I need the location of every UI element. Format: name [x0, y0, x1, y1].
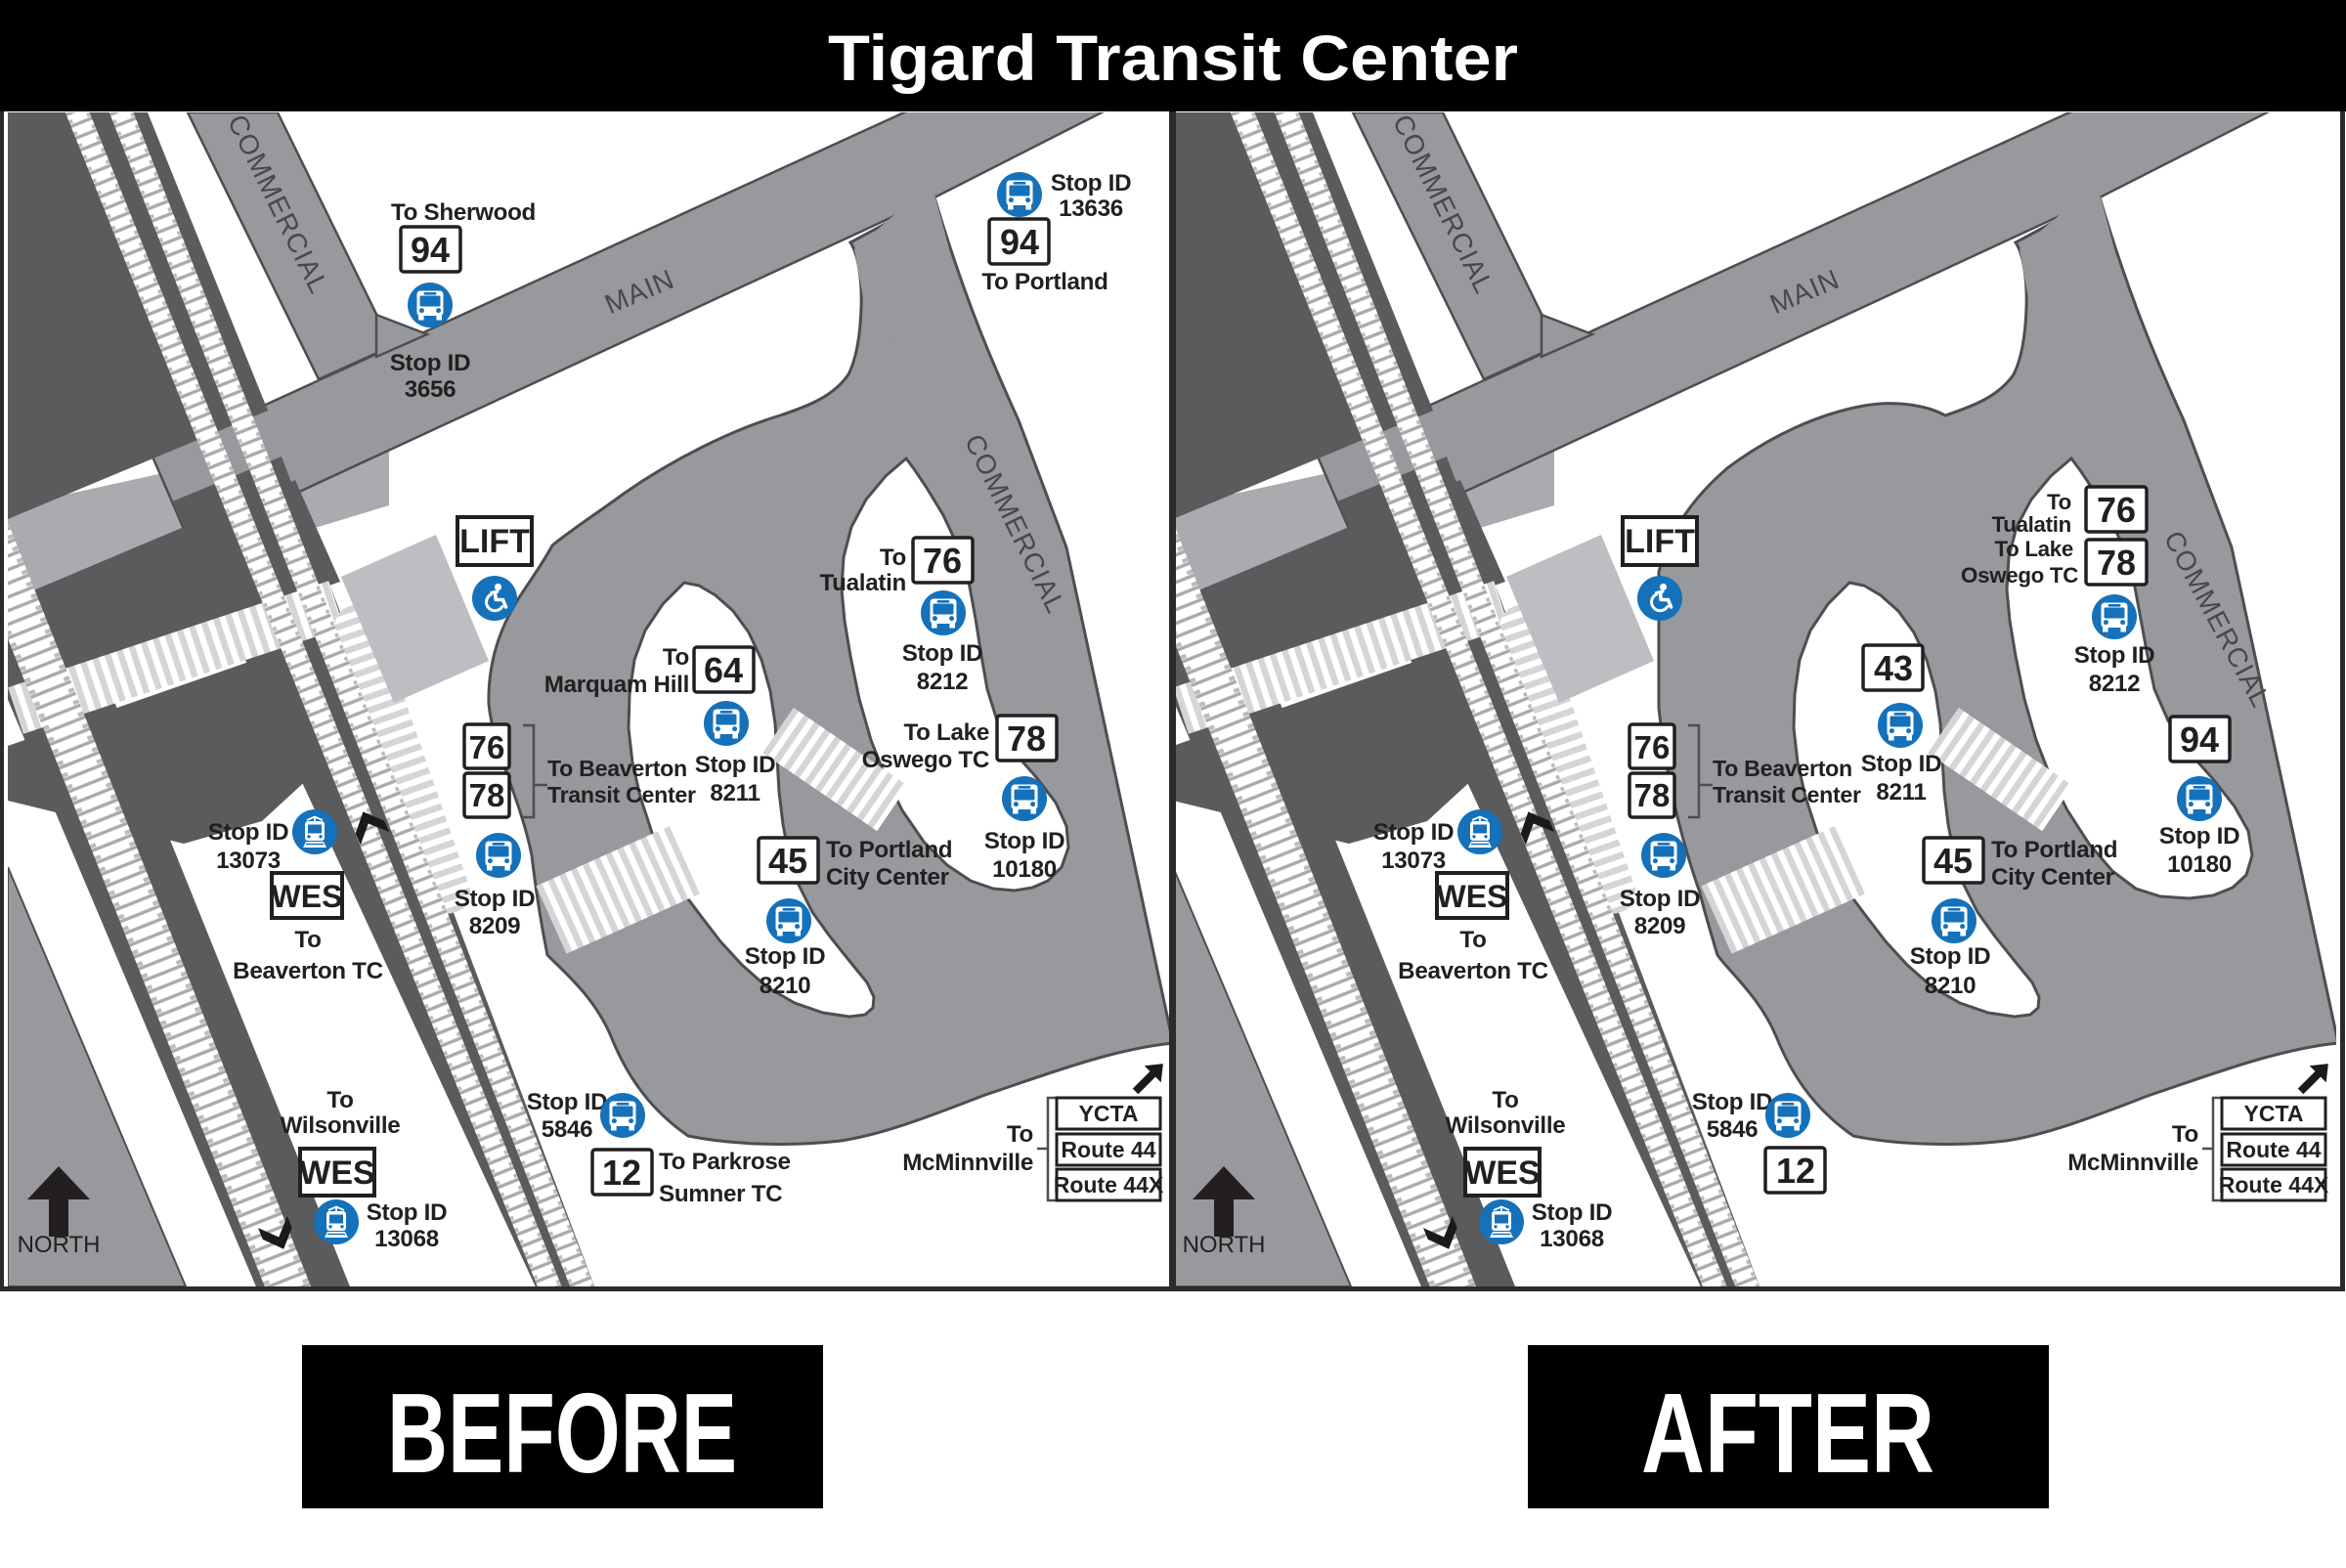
svg-text:LIFT: LIFT — [459, 523, 530, 560]
svg-text:WES: WES — [1437, 879, 1508, 914]
svg-text:Tualatin: Tualatin — [819, 570, 906, 596]
svg-text:8210: 8210 — [760, 973, 811, 999]
svg-text:Transit Center: Transit Center — [547, 782, 696, 807]
svg-text:WES: WES — [299, 1154, 374, 1192]
svg-text:76: 76 — [2097, 490, 2136, 530]
svg-text:To Beaverton: To Beaverton — [547, 756, 687, 781]
svg-text:NORTH: NORTH — [1183, 1232, 1266, 1258]
svg-text:To Portland: To Portland — [981, 269, 1108, 295]
svg-text:8209: 8209 — [1634, 913, 1686, 939]
svg-text:78: 78 — [1634, 777, 1671, 813]
svg-text:Stop ID: Stop ID — [1861, 751, 1942, 777]
svg-text:8210: 8210 — [1925, 973, 1977, 999]
svg-text:Stop ID: Stop ID — [390, 350, 471, 376]
svg-text:78: 78 — [2097, 543, 2136, 583]
svg-text:To: To — [2047, 490, 2071, 514]
svg-text:To Parkrose: To Parkrose — [659, 1149, 791, 1175]
svg-text:Route 44X: Route 44X — [1054, 1172, 1164, 1198]
svg-text:To Lake: To Lake — [1994, 537, 2073, 561]
svg-text:To Sherwood: To Sherwood — [391, 199, 536, 226]
svg-text:YCTA: YCTA — [2244, 1101, 2304, 1126]
svg-text:Stop ID: Stop ID — [367, 1199, 448, 1226]
svg-text:Stop ID: Stop ID — [1910, 943, 1991, 970]
svg-text:Oswego TC: Oswego TC — [1961, 563, 2078, 588]
svg-text:13068: 13068 — [1540, 1226, 1604, 1252]
svg-text:City Center: City Center — [826, 864, 950, 891]
svg-text:3656: 3656 — [405, 376, 456, 403]
svg-text:Route 44: Route 44 — [1061, 1137, 1155, 1162]
svg-text:LIFT: LIFT — [1625, 523, 1695, 560]
svg-text:12: 12 — [602, 1153, 641, 1193]
svg-text:13636: 13636 — [1059, 196, 1123, 222]
svg-text:City Center: City Center — [1991, 864, 2115, 891]
svg-text:Marquam Hill: Marquam Hill — [544, 672, 689, 698]
svg-text:64: 64 — [704, 650, 743, 690]
svg-text:Stop ID: Stop ID — [1692, 1089, 1773, 1115]
svg-text:Beaverton TC: Beaverton TC — [1398, 958, 1548, 984]
svg-text:Route 44X: Route 44X — [2219, 1172, 2329, 1198]
svg-text:8212: 8212 — [2089, 671, 2141, 697]
svg-text:To: To — [880, 544, 906, 571]
svg-text:5846: 5846 — [1707, 1116, 1759, 1143]
svg-text:AFTER: AFTER — [1641, 1370, 1934, 1497]
svg-text:Stop ID: Stop ID — [984, 828, 1065, 854]
svg-text:Wilsonville: Wilsonville — [281, 1112, 401, 1139]
svg-text:To Lake: To Lake — [903, 719, 989, 746]
svg-text:Route 44: Route 44 — [2226, 1137, 2321, 1162]
svg-text:45: 45 — [768, 841, 807, 881]
svg-text:10180: 10180 — [992, 856, 1057, 883]
svg-text:5846: 5846 — [542, 1116, 593, 1143]
svg-text:McMinnville: McMinnville — [2067, 1150, 2198, 1176]
svg-text:43: 43 — [1874, 648, 1913, 688]
svg-text:78: 78 — [1007, 719, 1046, 759]
svg-text:Stop ID: Stop ID — [527, 1089, 608, 1115]
svg-text:BEFORE: BEFORE — [387, 1370, 737, 1497]
svg-text:Transit Center: Transit Center — [1713, 782, 1861, 807]
svg-text:YCTA: YCTA — [1079, 1101, 1139, 1126]
svg-text:76: 76 — [469, 729, 505, 765]
svg-text:Oswego TC: Oswego TC — [862, 747, 989, 773]
svg-text:To: To — [2172, 1121, 2198, 1148]
svg-text:To: To — [663, 644, 689, 671]
svg-text:76: 76 — [923, 541, 962, 581]
svg-text:8212: 8212 — [917, 669, 969, 695]
svg-text:13073: 13073 — [1381, 848, 1446, 874]
svg-text:Stop ID: Stop ID — [2074, 642, 2155, 669]
svg-text:Tualatin: Tualatin — [1992, 512, 2071, 537]
svg-text:Stop ID: Stop ID — [902, 640, 983, 667]
svg-text:WES: WES — [272, 879, 343, 914]
svg-text:To Portland: To Portland — [1991, 837, 2117, 863]
svg-text:NORTH: NORTH — [18, 1232, 101, 1258]
svg-text:Tigard Transit Center: Tigard Transit Center — [828, 22, 1518, 94]
svg-text:94: 94 — [411, 230, 450, 270]
svg-text:94: 94 — [2180, 719, 2219, 760]
svg-text:To: To — [1492, 1087, 1518, 1113]
svg-text:To: To — [1007, 1121, 1033, 1148]
svg-text:8211: 8211 — [1876, 779, 1926, 806]
svg-text:8211: 8211 — [710, 780, 760, 806]
svg-text:Beaverton TC: Beaverton TC — [233, 958, 383, 984]
svg-text:13068: 13068 — [374, 1226, 439, 1252]
svg-text:94: 94 — [1000, 222, 1039, 262]
svg-text:To: To — [1459, 927, 1486, 953]
svg-text:Stop ID: Stop ID — [1620, 886, 1701, 912]
svg-text:To Portland: To Portland — [826, 837, 952, 863]
svg-text:Stop ID: Stop ID — [455, 886, 536, 912]
svg-text:Stop ID: Stop ID — [208, 819, 289, 846]
svg-text:8209: 8209 — [469, 913, 521, 939]
svg-text:Stop ID: Stop ID — [1051, 170, 1132, 196]
svg-text:McMinnville: McMinnville — [902, 1150, 1033, 1176]
svg-text:Stop ID: Stop ID — [2159, 823, 2240, 849]
svg-text:WES: WES — [1464, 1154, 1540, 1192]
svg-text:76: 76 — [1634, 729, 1671, 765]
svg-text:45: 45 — [1933, 841, 1973, 881]
svg-text:Wilsonville: Wilsonville — [1446, 1112, 1566, 1139]
svg-text:Stop ID: Stop ID — [695, 752, 776, 778]
svg-text:To: To — [326, 1087, 353, 1113]
svg-text:Sumner TC: Sumner TC — [659, 1181, 782, 1207]
svg-text:78: 78 — [469, 777, 505, 813]
svg-text:Stop ID: Stop ID — [745, 943, 826, 970]
svg-text:Stop ID: Stop ID — [1373, 819, 1455, 846]
svg-text:To Beaverton: To Beaverton — [1713, 756, 1852, 781]
svg-text:Stop ID: Stop ID — [1532, 1199, 1613, 1226]
svg-text:To: To — [294, 927, 321, 953]
svg-text:13073: 13073 — [216, 848, 281, 874]
svg-text:12: 12 — [1776, 1151, 1815, 1191]
svg-text:10180: 10180 — [2167, 851, 2232, 878]
